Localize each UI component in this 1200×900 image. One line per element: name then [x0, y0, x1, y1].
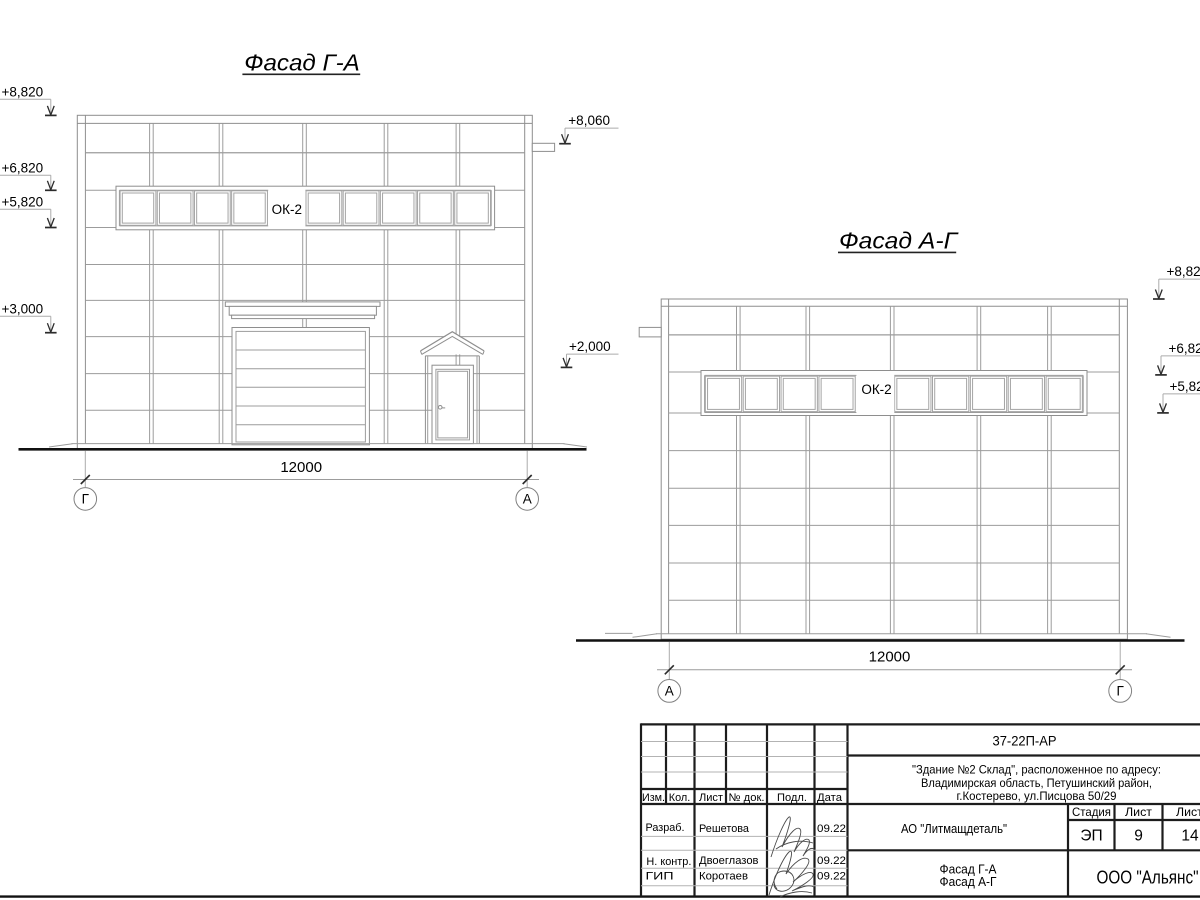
svg-text:09.22: 09.22	[817, 823, 846, 835]
svg-text:Листов: Листов	[1176, 805, 1200, 819]
svg-text:+8,820: +8,820	[2, 84, 44, 99]
svg-text:ГИП: ГИП	[646, 870, 674, 882]
svg-text:"Здание №2 Склад", расположенн: "Здание №2 Склад", расположенное по адре…	[912, 763, 1161, 777]
svg-text:№ док.: № док.	[729, 792, 765, 804]
svg-text:Решетова: Решетова	[699, 823, 750, 835]
svg-text:Г: Г	[82, 492, 90, 507]
svg-text:+5,820: +5,820	[2, 194, 44, 209]
svg-text:Владимирская область, Петушинс: Владимирская область, Петушинский район,	[921, 776, 1152, 790]
svg-text:ЭП: ЭП	[1080, 828, 1102, 845]
svg-text:АО "Литмащдеталь": АО "Литмащдеталь"	[901, 822, 1007, 836]
svg-text:14: 14	[1181, 828, 1199, 845]
svg-text:Коротаев: Коротаев	[699, 870, 748, 882]
svg-text:Н. контр.: Н. контр.	[646, 856, 691, 868]
svg-text:ООО "Альянс": ООО "Альянс"	[1097, 868, 1199, 888]
svg-text:ОК-2: ОК-2	[861, 382, 891, 397]
svg-text:09.22: 09.22	[817, 855, 846, 867]
svg-text:+6,820: +6,820	[1169, 341, 1200, 356]
svg-text:г.Костерево, ул.Писцова 50/29: г.Костерево, ул.Писцова 50/29	[957, 789, 1117, 803]
svg-text:Фасад А-Г: Фасад А-Г	[940, 875, 997, 889]
svg-text:Стадия: Стадия	[1072, 805, 1111, 819]
svg-text:Г: Г	[1117, 684, 1125, 699]
svg-text:ОК-2: ОК-2	[272, 202, 302, 217]
svg-text:37-22П-АР: 37-22П-АР	[993, 732, 1057, 748]
svg-text:+8,060: +8,060	[568, 113, 610, 128]
svg-text:+5,820: +5,820	[1170, 379, 1200, 394]
svg-text:Фасад Г-А: Фасад Г-А	[244, 49, 360, 75]
svg-text:Разраб.: Разраб.	[646, 822, 685, 834]
svg-text:9: 9	[1134, 828, 1143, 845]
svg-text:Фасад А-Г: Фасад А-Г	[839, 228, 959, 254]
svg-text:Лист: Лист	[1125, 805, 1153, 819]
svg-text:Лист: Лист	[699, 792, 723, 804]
svg-text:Кол.: Кол.	[669, 792, 691, 804]
svg-text:Подл.: Подл.	[777, 792, 807, 804]
svg-text:А: А	[523, 492, 532, 507]
svg-text:+2,000: +2,000	[569, 339, 611, 354]
svg-text:Дата: Дата	[817, 792, 843, 804]
svg-text:+6,820: +6,820	[2, 160, 44, 175]
svg-text:Изм.: Изм.	[642, 792, 665, 804]
svg-text:12000: 12000	[869, 649, 911, 666]
svg-text:09.22: 09.22	[817, 870, 846, 882]
svg-text:+8,820: +8,820	[1167, 264, 1200, 279]
svg-text:А: А	[665, 684, 674, 699]
svg-text:12000: 12000	[280, 459, 322, 476]
svg-text:Двоеглазов: Двоеглазов	[699, 855, 759, 867]
svg-text:+3,000: +3,000	[2, 301, 44, 316]
